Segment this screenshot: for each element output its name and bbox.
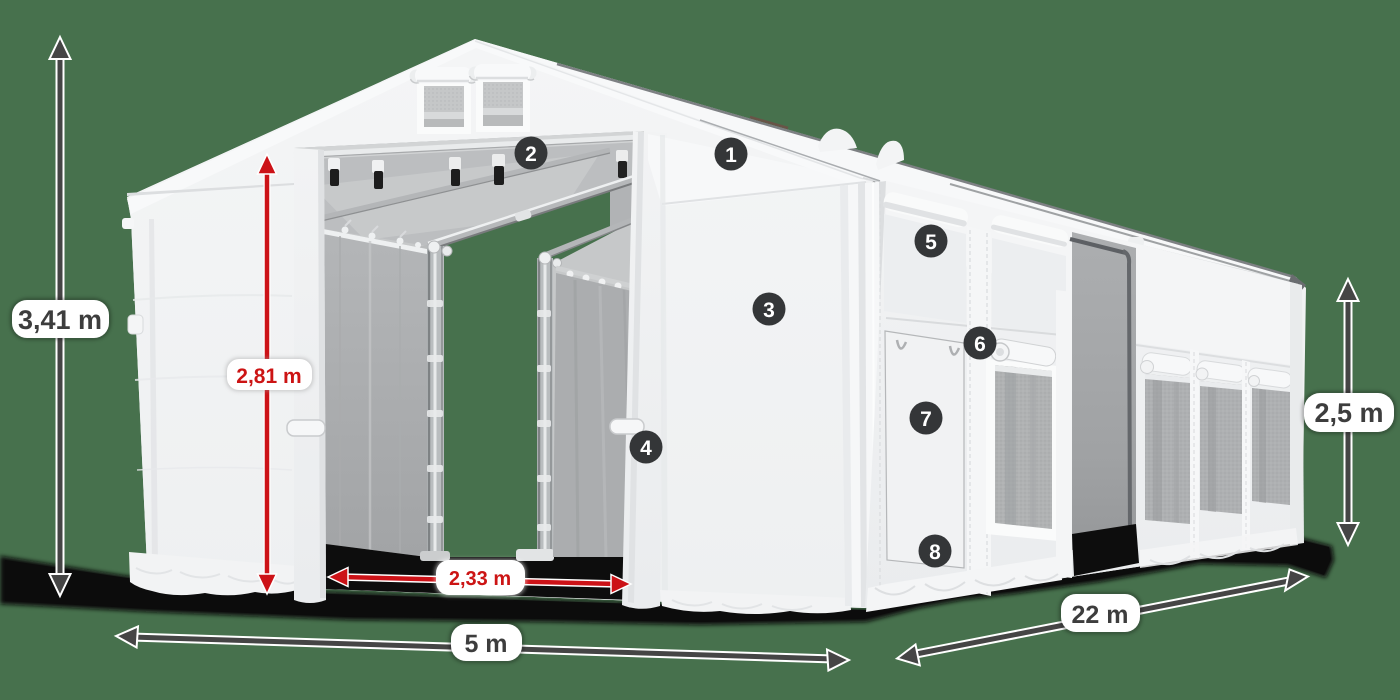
svg-text:3: 3 (763, 299, 775, 322)
svg-text:22 m: 22 m (1072, 601, 1129, 629)
svg-text:6: 6 (974, 333, 986, 356)
svg-text:2,33 m: 2,33 m (449, 568, 511, 590)
svg-text:8: 8 (929, 541, 941, 564)
svg-text:4: 4 (640, 437, 652, 460)
svg-text:7: 7 (920, 408, 932, 431)
svg-text:2: 2 (525, 143, 537, 166)
svg-text:5: 5 (925, 231, 937, 254)
svg-text:2,5 m: 2,5 m (1314, 398, 1383, 428)
svg-text:5 m: 5 m (464, 630, 507, 658)
svg-text:2,81 m: 2,81 m (236, 365, 301, 388)
svg-text:3,41 m: 3,41 m (18, 305, 102, 335)
svg-text:1: 1 (725, 144, 737, 167)
